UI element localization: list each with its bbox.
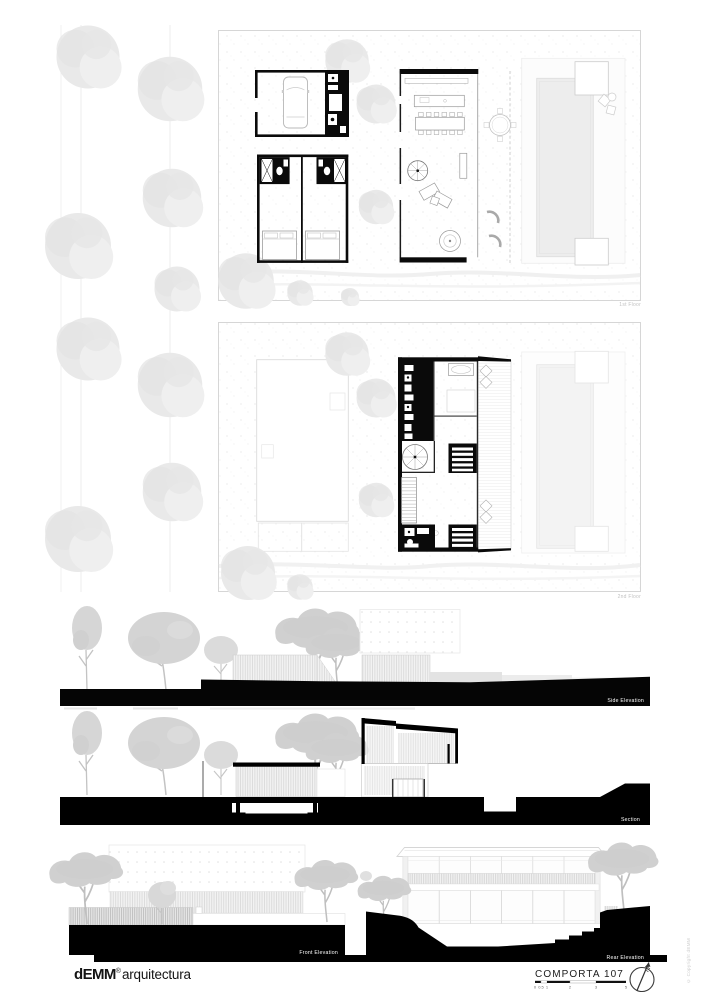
title-underline-scale-bar: 0 0.5 1 2 3 5 bbox=[534, 981, 628, 990]
roof-deck bbox=[478, 357, 511, 551]
car bbox=[284, 77, 308, 128]
rear-elevation-label: Rear Elevation bbox=[606, 955, 644, 961]
deck-square bbox=[575, 62, 608, 95]
scale-mark: 0 bbox=[534, 984, 537, 989]
north-arrow-icon bbox=[630, 963, 654, 992]
pool-cut bbox=[484, 793, 516, 812]
sheet-artwork: 0 0.5 1 2 3 5 bbox=[0, 0, 707, 1000]
roof-slab-cut bbox=[233, 763, 320, 767]
deck-square bbox=[575, 238, 608, 265]
front-elevation-drawing bbox=[49, 845, 358, 955]
dining-table bbox=[416, 117, 465, 130]
kitchen-core bbox=[325, 70, 349, 137]
ground bbox=[60, 677, 650, 706]
scale-mark: 0.5 bbox=[538, 984, 544, 989]
footer-rule bbox=[94, 955, 667, 962]
scale-mark: 2 bbox=[569, 984, 572, 989]
first-floor-plan bbox=[218, 31, 640, 309]
ground-cut bbox=[60, 784, 650, 826]
rear-elevation-drawing bbox=[358, 843, 659, 955]
first-floor-label: 1st Floor bbox=[619, 302, 641, 308]
section-drawing bbox=[60, 711, 650, 825]
roof bbox=[397, 848, 606, 857]
logo-brand: dEMM bbox=[74, 966, 116, 983]
pool-ghost bbox=[537, 365, 594, 549]
left-site-strip bbox=[45, 25, 204, 592]
second-floor-label: 2nd Floor bbox=[618, 594, 641, 600]
logo-studio: arquitectura bbox=[122, 967, 191, 982]
scale-mark: 3 bbox=[595, 984, 598, 989]
scale-mark: 5 bbox=[625, 984, 628, 989]
outdoor-table bbox=[490, 115, 511, 136]
studio-logo: dEMM®arquitectura bbox=[74, 966, 191, 984]
second-floor-plan bbox=[219, 323, 641, 601]
presentation-sheet: 0 0.5 1 2 3 5 1st Floor 2nd Floor Side E… bbox=[0, 0, 707, 1000]
balustrade bbox=[408, 874, 595, 885]
section-label: Section bbox=[621, 817, 640, 823]
front-elevation-label: Front Elevation bbox=[299, 950, 338, 956]
scale-mark: 1 bbox=[546, 984, 549, 989]
side-elevation-label: Side Elevation bbox=[607, 698, 644, 704]
kitchen-island bbox=[414, 95, 464, 106]
registered-mark-icon: ® bbox=[116, 968, 121, 975]
side-elevation-drawing bbox=[60, 606, 650, 710]
copyright-note: © Copyright dEMM bbox=[686, 938, 691, 983]
project-title: COMPORTA 107 bbox=[535, 969, 624, 980]
pool bbox=[537, 78, 594, 256]
